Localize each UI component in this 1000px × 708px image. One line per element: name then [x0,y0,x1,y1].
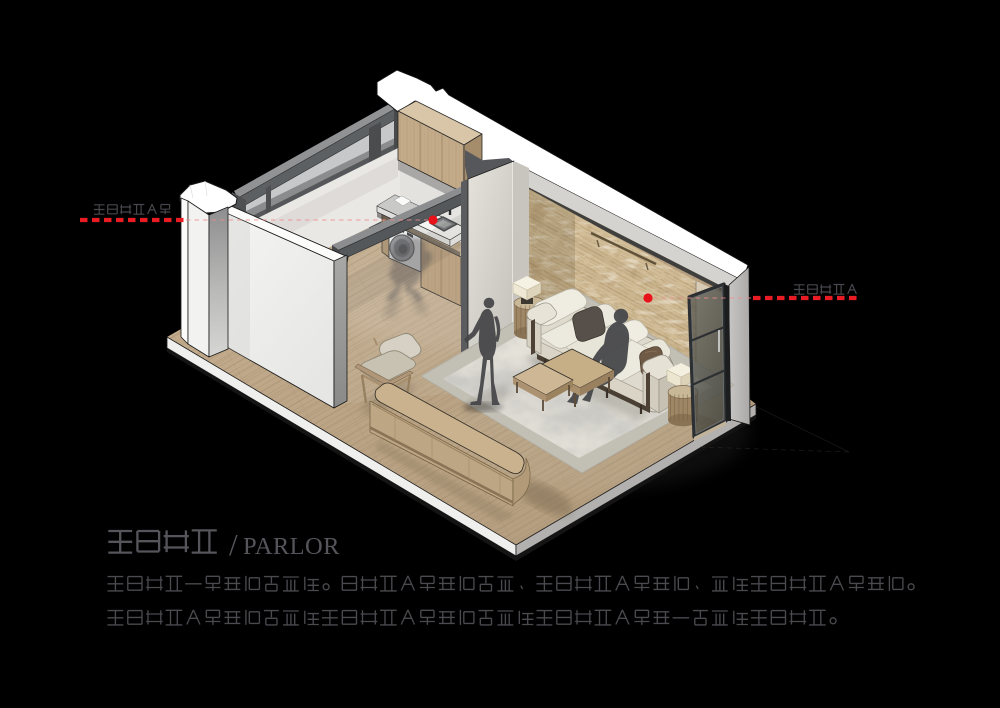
svg-text:PARLOR: PARLOR [243,533,340,560]
svg-text:/: / [229,527,238,562]
